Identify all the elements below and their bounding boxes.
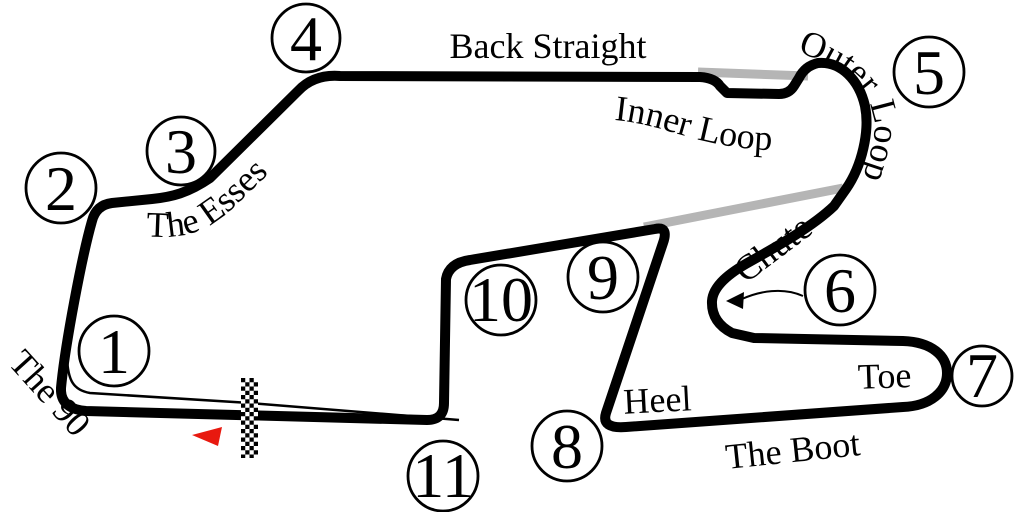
turn-marker-10: 10 (466, 264, 536, 335)
turn-6-pointer-arrowhead-icon (726, 292, 744, 309)
turn-6-pointer-line (742, 291, 803, 299)
start-finish-line (241, 378, 258, 458)
turn-marker-9: 9 (568, 242, 638, 313)
label-toe: Toe (857, 355, 912, 397)
turn-marker-number: 11 (412, 440, 474, 511)
turn-marker-number: 3 (165, 116, 197, 187)
turn-marker-number: 2 (45, 153, 77, 224)
turn-marker-number: 9 (587, 242, 619, 313)
direction-arrow (192, 427, 222, 446)
turn-marker-11: 11 (408, 440, 478, 511)
turn-marker-7: 7 (952, 340, 1012, 411)
turn-marker-8: 8 (532, 411, 602, 482)
turn-6-pointer (726, 291, 803, 309)
label-inner-loop: Inner Loop (613, 88, 774, 158)
turn-marker-number: 5 (913, 37, 945, 108)
turn-marker-number: 4 (290, 3, 322, 74)
turn-marker-6: 6 (805, 255, 875, 326)
turn-marker-number: 1 (98, 316, 130, 387)
label-outer-loop: Outer Loop (794, 22, 907, 188)
track-map: Back Straight Inner Loop Outer Loop The … (0, 0, 1017, 512)
label-the-boot: The Boot (724, 423, 862, 477)
label-heel: Heel (622, 378, 692, 422)
turn-marker-1: 1 (79, 316, 149, 387)
turn-marker-3: 3 (147, 116, 215, 187)
turn-marker-number: 7 (966, 340, 998, 411)
turn-marker-number: 8 (551, 411, 583, 482)
label-back-straight: Back Straight (450, 26, 647, 66)
turn-marker-number: 6 (824, 255, 856, 326)
turn-marker-5: 5 (894, 37, 964, 108)
track-map-stage: Back Straight Inner Loop Outer Loop The … (0, 0, 1017, 512)
label-chute: Chute (726, 207, 819, 291)
turn-marker-number: 10 (469, 264, 533, 335)
turn-marker-4: 4 (272, 3, 340, 74)
turn-marker-2: 2 (26, 153, 96, 224)
